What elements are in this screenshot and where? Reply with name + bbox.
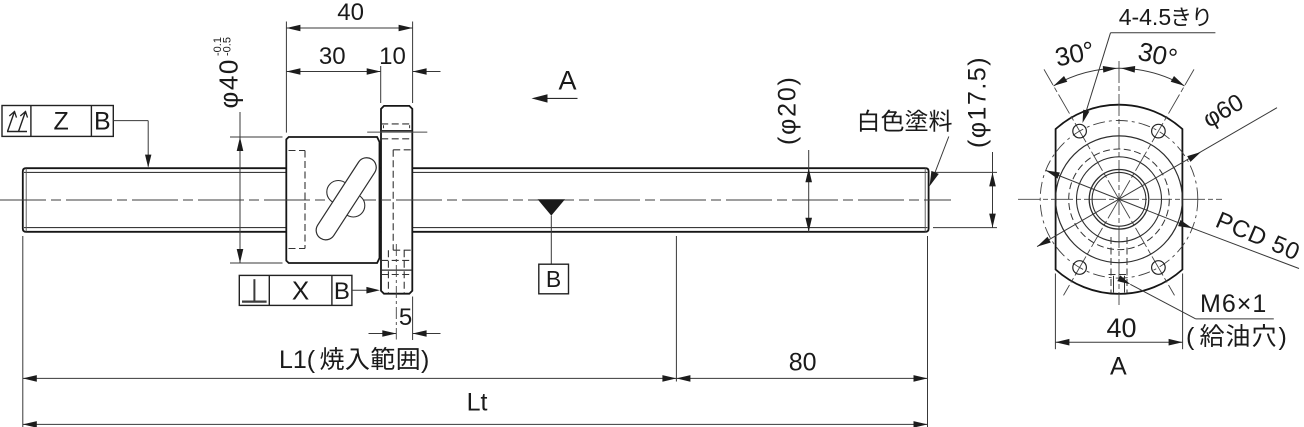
svg-text:80: 80 xyxy=(789,349,817,377)
svg-text:Lt: Lt xyxy=(467,389,488,417)
svg-text:40: 40 xyxy=(1106,313,1136,343)
svg-text:B: B xyxy=(546,266,561,292)
svg-text:L1(: L1( xyxy=(279,346,316,374)
svg-text:(φ20): (φ20) xyxy=(774,75,802,145)
svg-text:A: A xyxy=(1110,352,1127,380)
svg-text:10: 10 xyxy=(379,43,406,70)
svg-text:-0.5: -0.5 xyxy=(222,37,234,56)
svg-text:5: 5 xyxy=(399,304,412,331)
svg-text:): ) xyxy=(1279,323,1287,351)
svg-text:4-4.5: 4-4.5 xyxy=(1119,4,1171,30)
svg-text:X: X xyxy=(292,276,309,306)
svg-text:B: B xyxy=(94,108,111,136)
svg-text:B: B xyxy=(334,278,350,305)
svg-text:M6×1: M6×1 xyxy=(1200,290,1267,318)
svg-text:(: ( xyxy=(1186,323,1195,351)
svg-text:A: A xyxy=(558,66,576,96)
svg-text:): ) xyxy=(421,346,429,374)
svg-text:40: 40 xyxy=(337,0,364,26)
svg-text:φ40: φ40 xyxy=(214,58,244,108)
svg-text:Z: Z xyxy=(53,108,68,136)
svg-text:30: 30 xyxy=(319,43,346,70)
svg-text:(φ17.5): (φ17.5) xyxy=(964,56,992,148)
